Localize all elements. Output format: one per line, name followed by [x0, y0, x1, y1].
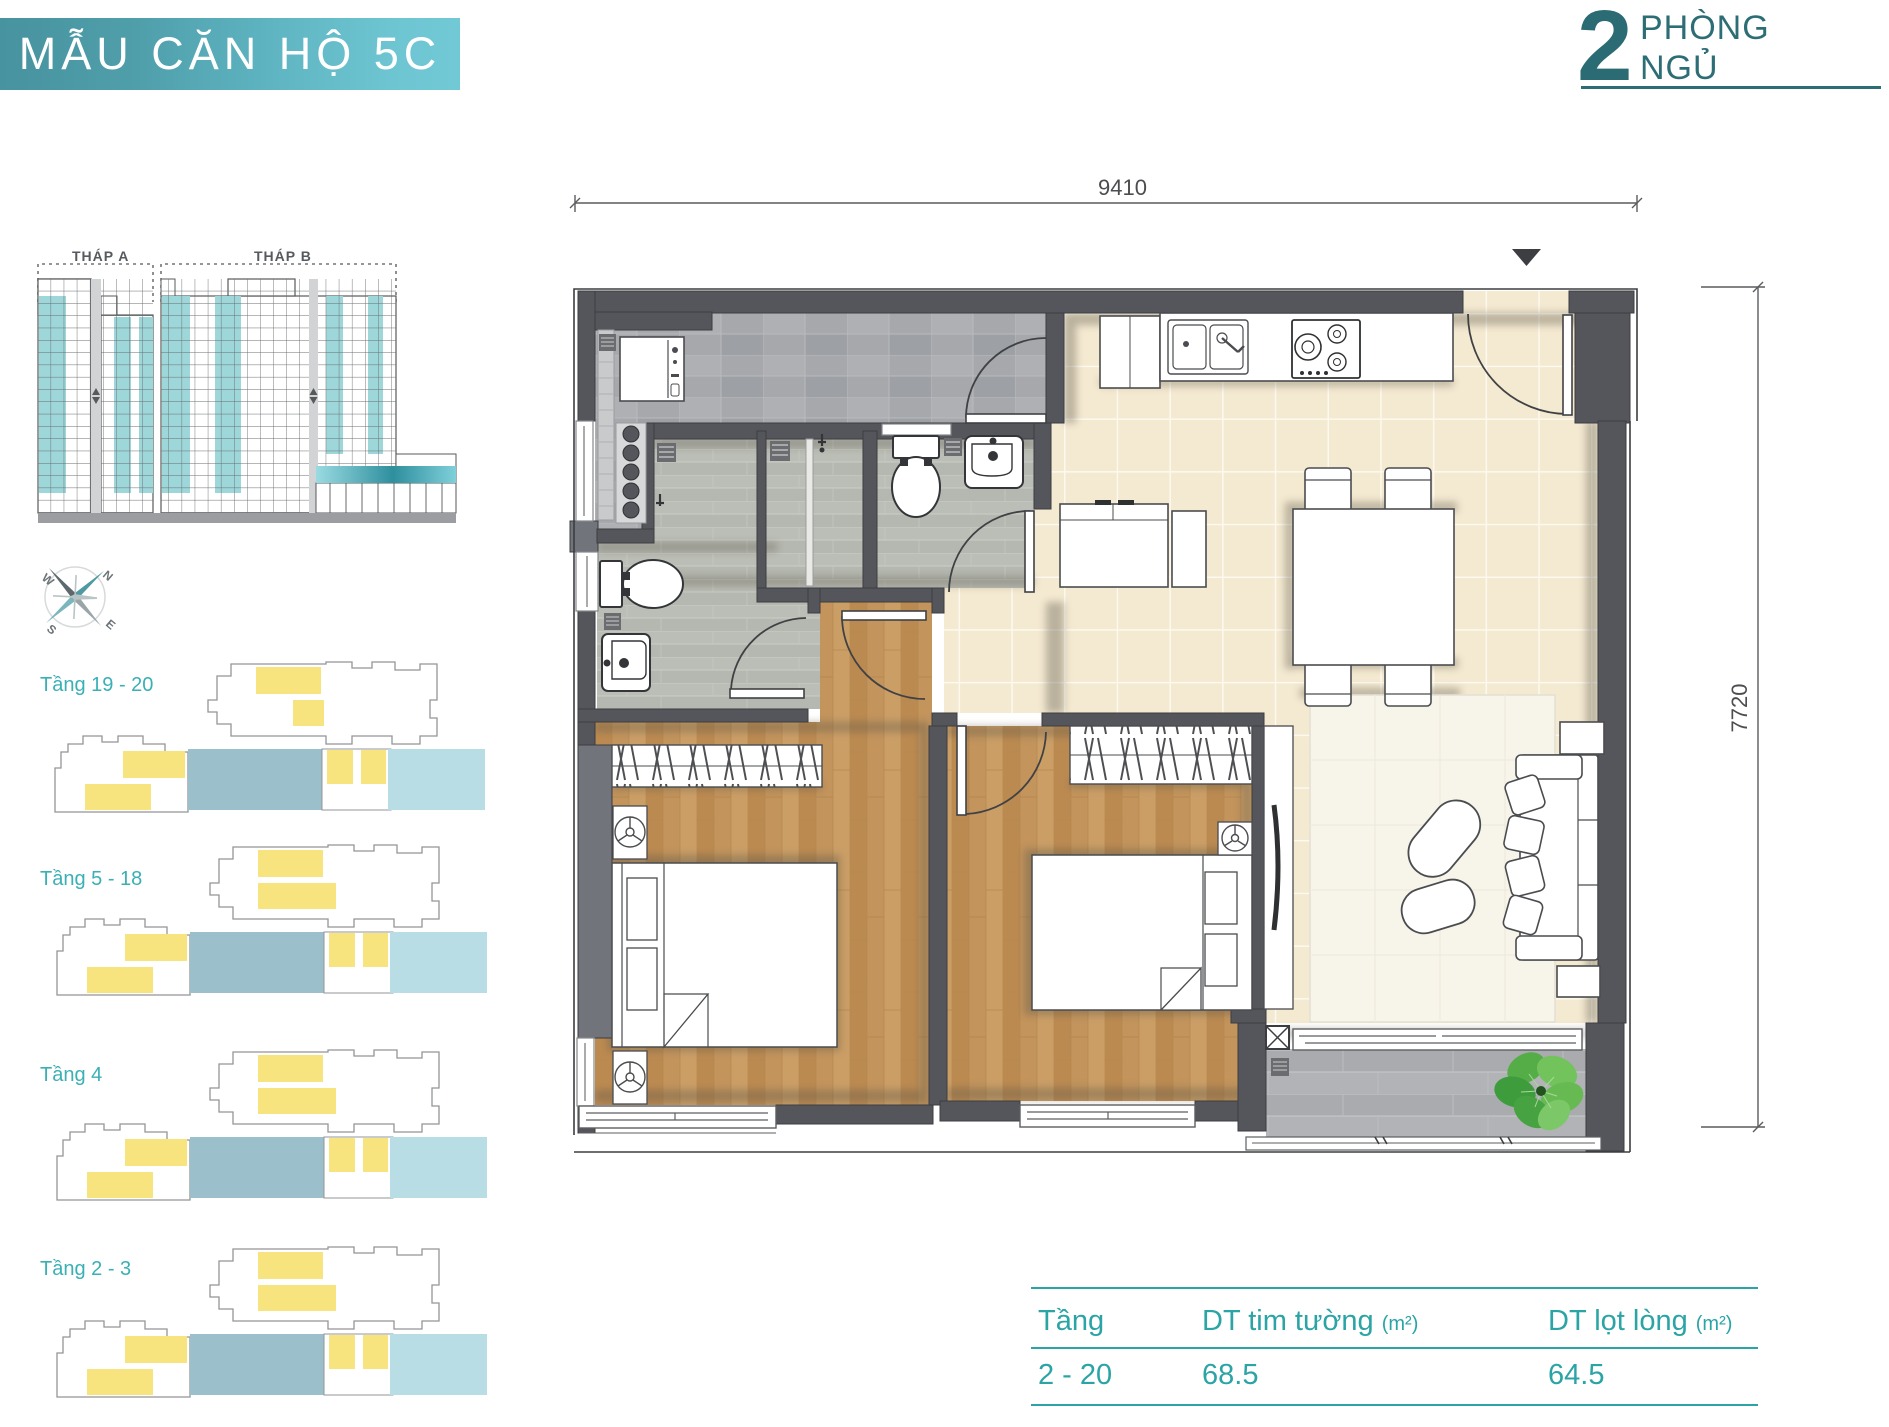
svg-text:S: S [44, 622, 59, 638]
svg-text:N: N [100, 568, 116, 584]
svg-text:E: E [103, 617, 118, 633]
